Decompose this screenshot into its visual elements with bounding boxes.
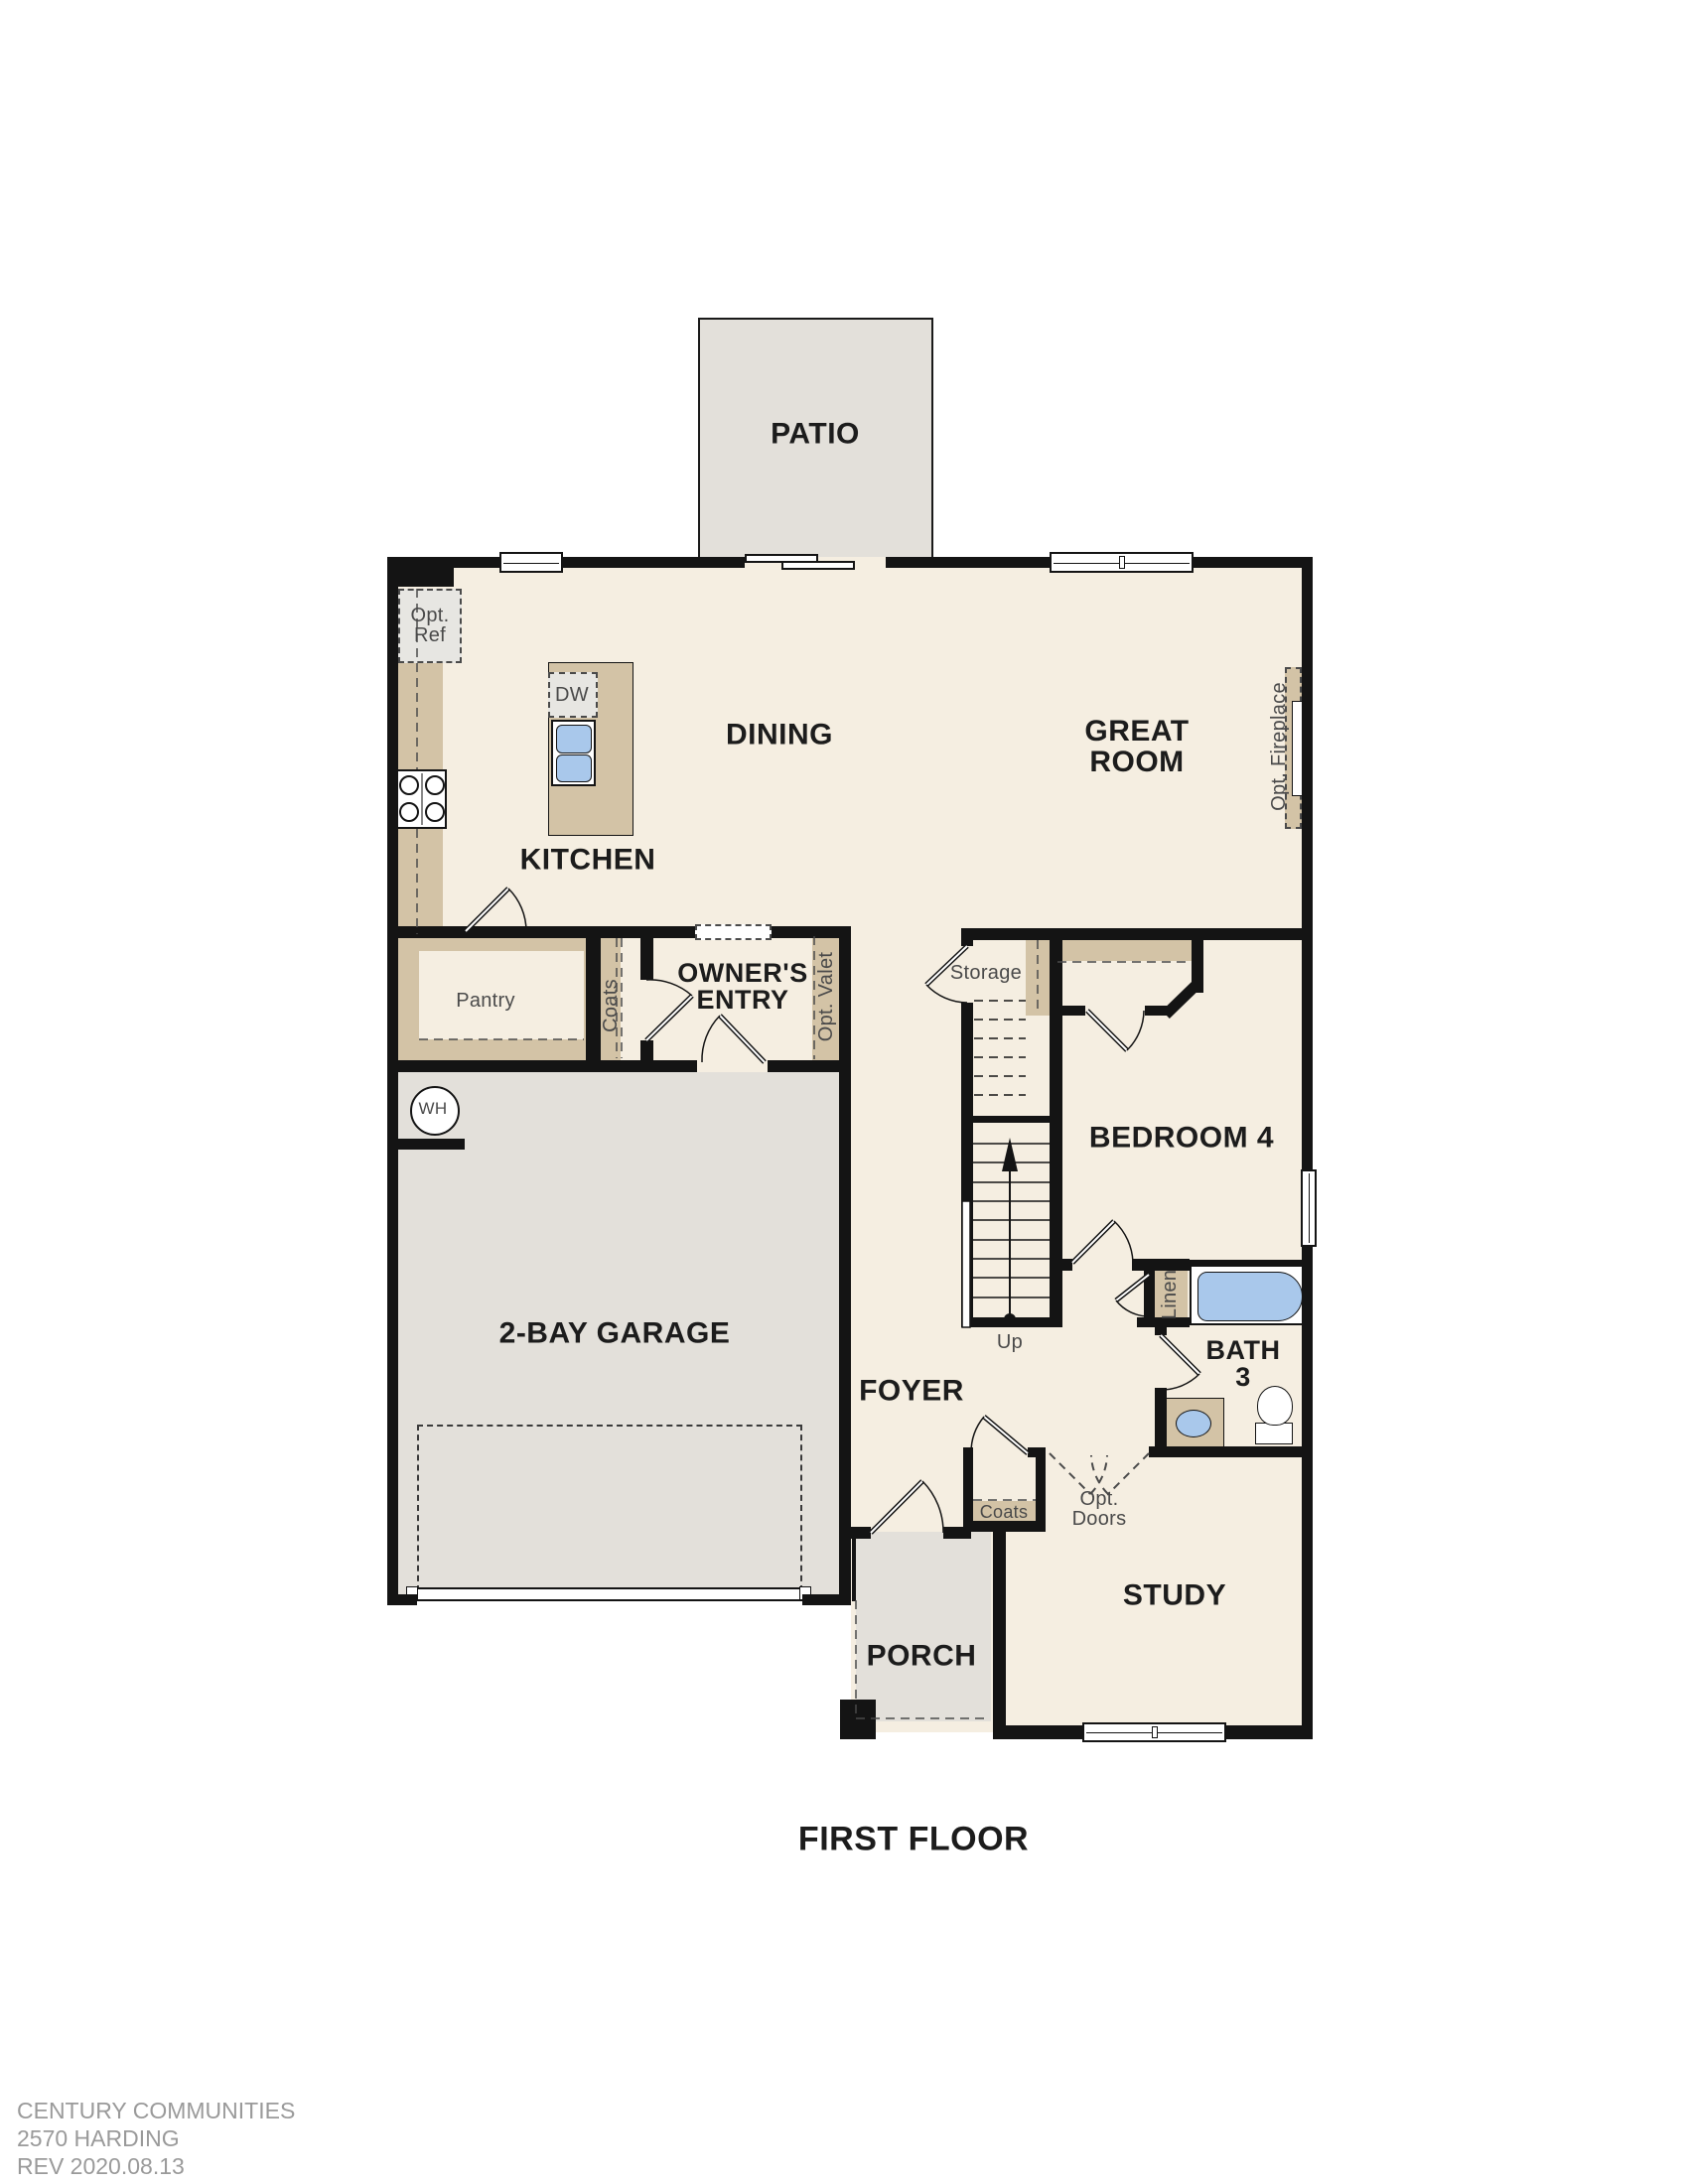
room-label-dining: DINING xyxy=(726,720,833,751)
label-opt-fireplace: Opt. Fireplace xyxy=(1269,682,1289,811)
stove-burners xyxy=(400,773,444,825)
footer-revision: REV 2020.08.13 xyxy=(17,2152,295,2180)
label-opt-valet: Opt. Valet xyxy=(816,952,836,1041)
label-wh: WH xyxy=(419,1099,448,1119)
label-opt-ref: Opt. Ref xyxy=(404,606,456,645)
label-opt-doors: Opt. Doors xyxy=(1067,1489,1131,1529)
footer-plan-name: 2570 HARDING xyxy=(17,2124,295,2152)
room-label-great-room: GREAT ROOM xyxy=(1072,716,1201,777)
room-label-bath3: BATH 3 xyxy=(1198,1337,1288,1391)
room-label-bedroom4: BEDROOM 4 xyxy=(1089,1123,1274,1154)
label-up: Up xyxy=(997,1332,1023,1352)
label-pantry: Pantry xyxy=(456,991,515,1011)
closet-chamfer-wall xyxy=(1166,982,1199,1015)
room-label-porch: PORCH xyxy=(867,1641,977,1672)
room-label-patio: PATIO xyxy=(771,419,860,450)
room-label-study: STUDY xyxy=(1123,1580,1226,1611)
label-dw: DW xyxy=(555,685,589,705)
label-coats: Coats xyxy=(601,979,621,1032)
footer-company: CENTURY COMMUNITIES xyxy=(17,2097,295,2124)
room-label-owners-entry: OWNER'S ENTRY xyxy=(663,960,822,1014)
stair-rail xyxy=(962,1201,970,1327)
label-linen: Linen xyxy=(1160,1270,1180,1319)
label-foyer-coats: Coats xyxy=(980,1502,1029,1522)
room-label-foyer: FOYER xyxy=(859,1376,964,1407)
label-storage: Storage xyxy=(950,963,1022,983)
room-label-kitchen: KITCHEN xyxy=(520,845,656,876)
plan-title: FIRST FLOOR xyxy=(798,1825,1029,1855)
floorplan-page: PATIO DINING GREAT ROOM KITCHEN OWNER'S … xyxy=(0,0,1688,2184)
room-label-garage: 2-BAY GARAGE xyxy=(499,1318,731,1349)
title-block: CENTURY COMMUNITIES 2570 HARDING REV 202… xyxy=(17,2097,295,2180)
